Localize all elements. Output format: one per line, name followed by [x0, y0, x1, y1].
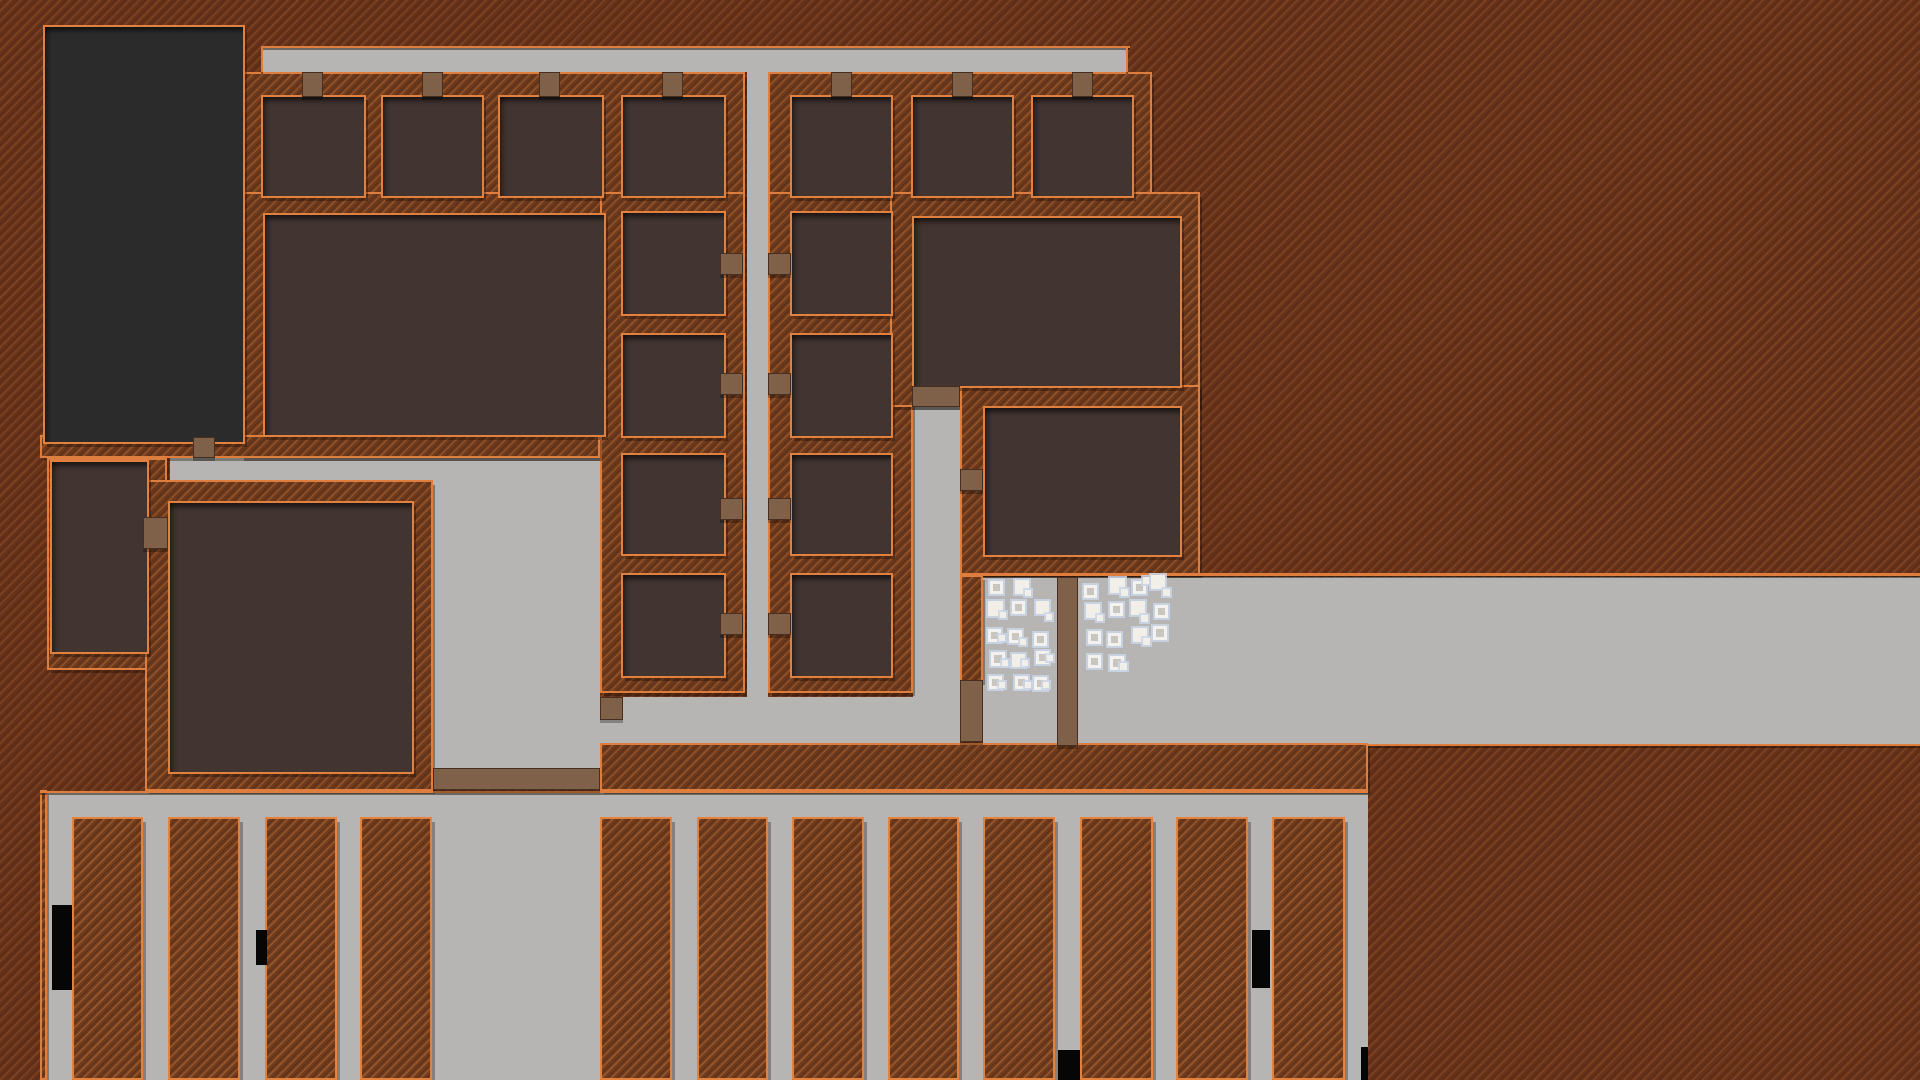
large-dark-building[interactable] — [43, 25, 245, 444]
top-cell-1[interactable] — [261, 95, 366, 198]
east-road-top-edge — [983, 573, 1920, 576]
top-cell-6[interactable] — [911, 95, 1014, 198]
game-map — [0, 0, 1920, 1080]
stockpile-item-19[interactable] — [1047, 655, 1053, 661]
left-col-door-4[interactable] — [720, 613, 743, 635]
stockpile-item-1[interactable] — [990, 581, 1003, 594]
east-room[interactable] — [983, 406, 1182, 557]
farm-top-edge — [40, 791, 1368, 793]
stockpile-item-43[interactable] — [1153, 626, 1167, 640]
east-room-door[interactable] — [960, 469, 983, 491]
stockpile-item-8[interactable] — [1046, 614, 1052, 620]
corridor-east-wall — [960, 575, 983, 682]
small-west-room[interactable] — [50, 460, 149, 654]
northeast-hall[interactable] — [912, 216, 1182, 388]
top-cell-5[interactable] — [790, 95, 893, 198]
field-1[interactable] — [72, 817, 143, 1080]
south-corridor — [600, 697, 913, 743]
debris-4[interactable] — [1252, 930, 1270, 988]
stockpile-item-44[interactable] — [1088, 655, 1101, 668]
top-cell-7[interactable] — [1031, 95, 1134, 198]
stockpile-item-7[interactable] — [1036, 601, 1049, 614]
field-6[interactable] — [697, 817, 768, 1080]
left-col-cell-1[interactable] — [621, 211, 726, 316]
south-wall-slab — [600, 743, 1368, 791]
stockpile-item-39[interactable] — [1088, 631, 1101, 644]
stockpile-item-23[interactable] — [1025, 682, 1031, 688]
debris-1[interactable] — [52, 905, 72, 990]
northeast-hall-door[interactable] — [912, 386, 960, 407]
right-col-cell-2[interactable] — [790, 333, 893, 438]
top-road-left-edge — [261, 46, 263, 72]
top-road — [263, 48, 1128, 72]
right-col-door-2[interactable] — [768, 373, 791, 395]
left-col-cell-2[interactable] — [621, 333, 726, 438]
field-2[interactable] — [168, 817, 240, 1080]
top-road-right-edge — [1126, 46, 1128, 72]
field-12[interactable] — [1272, 817, 1345, 1080]
stockpile-item-34[interactable] — [1097, 615, 1103, 621]
stockpile-item-35[interactable] — [1110, 603, 1123, 616]
field-8[interactable] — [888, 817, 959, 1080]
stockpile-item-21[interactable] — [999, 682, 1005, 688]
top-cell-2-door[interactable] — [422, 72, 443, 97]
left-col-cell-3[interactable] — [621, 453, 726, 556]
top-cell-2[interactable] — [381, 95, 484, 198]
left-hall[interactable] — [168, 501, 414, 774]
stockpile-item-13[interactable] — [1034, 633, 1047, 646]
right-col-door-4[interactable] — [768, 613, 791, 635]
top-cell-7-door[interactable] — [1072, 72, 1093, 97]
plaza-south-bridge[interactable] — [433, 768, 600, 790]
upper-left-road — [170, 458, 433, 480]
stockpile-item-30[interactable] — [1143, 577, 1150, 584]
top-cell-3[interactable] — [498, 95, 604, 198]
field-5[interactable] — [600, 817, 672, 1080]
stockpile-item-32[interactable] — [1163, 589, 1170, 596]
stockpile-item-6[interactable] — [1012, 601, 1025, 614]
stockpile-item-28[interactable] — [1121, 589, 1128, 596]
stockpile-item-26[interactable] — [1084, 585, 1097, 598]
top-cell-5-door[interactable] — [831, 72, 852, 97]
stockpile-divider-wall[interactable] — [1057, 577, 1078, 746]
top-cell-6-door[interactable] — [952, 72, 973, 97]
stockpile-item-15[interactable] — [1002, 660, 1008, 666]
stockpile-item-40[interactable] — [1108, 633, 1121, 646]
top-cell-4-door[interactable] — [662, 72, 683, 97]
mid-vertical-road — [747, 72, 768, 743]
right-col-cell-3[interactable] — [790, 453, 893, 556]
stockpile-item-46[interactable] — [1120, 663, 1127, 670]
left-col-door-2[interactable] — [720, 373, 743, 395]
stockpile-item-10[interactable] — [999, 635, 1005, 641]
field-7[interactable] — [792, 817, 864, 1080]
left-col-cell-4[interactable] — [621, 573, 726, 678]
stockpile-item-36[interactable] — [1131, 601, 1145, 615]
field-9[interactable] — [983, 817, 1055, 1080]
field-4[interactable] — [360, 817, 432, 1080]
field-11[interactable] — [1176, 817, 1248, 1080]
central-hall[interactable] — [263, 213, 606, 437]
stockpile-item-31[interactable] — [1151, 575, 1165, 589]
stockpile-item-3[interactable] — [1025, 590, 1031, 596]
top-cell-3-door[interactable] — [539, 72, 560, 97]
field-10[interactable] — [1080, 817, 1153, 1080]
corridor-gate[interactable] — [960, 680, 983, 742]
top-cell-1-door[interactable] — [302, 72, 323, 97]
debris-2[interactable] — [256, 930, 267, 965]
east-vertical-corridor — [913, 406, 960, 745]
stockpile-item-42[interactable] — [1143, 638, 1150, 645]
top-cell-4[interactable] — [621, 95, 726, 198]
right-col-door-3[interactable] — [768, 498, 791, 520]
stockpile-item-17[interactable] — [1022, 660, 1028, 666]
stockpile-item-5[interactable] — [1000, 612, 1006, 618]
small-west-room-door[interactable] — [143, 517, 168, 549]
stockpile-item-12[interactable] — [1020, 639, 1026, 645]
farm-left-wall — [40, 790, 47, 1080]
stockpile-item-37[interactable] — [1141, 615, 1148, 622]
right-col-cell-1[interactable] — [790, 211, 893, 316]
debris-3[interactable] — [1058, 1050, 1080, 1080]
stockpile-item-25[interactable] — [1043, 682, 1049, 688]
debris-5[interactable] — [1361, 1047, 1368, 1080]
stockpile-item-38[interactable] — [1155, 605, 1168, 618]
right-col-door-1[interactable] — [768, 253, 791, 275]
top-road-top-edge — [261, 46, 1130, 48]
central-plaza — [433, 458, 600, 768]
corridor-post[interactable] — [600, 697, 623, 720]
right-col-cell-4[interactable] — [790, 573, 893, 678]
left-col-door-3[interactable] — [720, 498, 743, 520]
field-3[interactable] — [265, 817, 337, 1080]
large-building-door[interactable] — [193, 437, 215, 458]
left-col-door-1[interactable] — [720, 253, 743, 275]
east-road-bottom-edge — [1368, 744, 1920, 746]
